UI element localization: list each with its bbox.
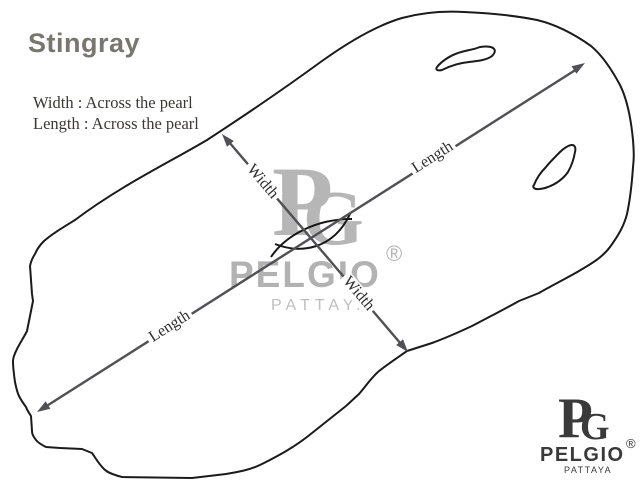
- measurement-notes: Width : Across the pearl Length : Across…: [33, 92, 199, 134]
- page-title: Stingray: [28, 30, 140, 57]
- eye-hole-left: [436, 47, 494, 71]
- stingray-outline: [13, 12, 634, 478]
- arrowhead: [37, 401, 50, 412]
- diagram-canvas: [0, 0, 640, 480]
- length-note: Length : Across the pearl: [33, 113, 199, 134]
- stingray-measurement-diagram: P G PELGIO ® PATTAYA Width Width Length …: [0, 0, 640, 480]
- width-note: Width : Across the pearl: [33, 92, 199, 113]
- eye-hole-right: [533, 145, 575, 189]
